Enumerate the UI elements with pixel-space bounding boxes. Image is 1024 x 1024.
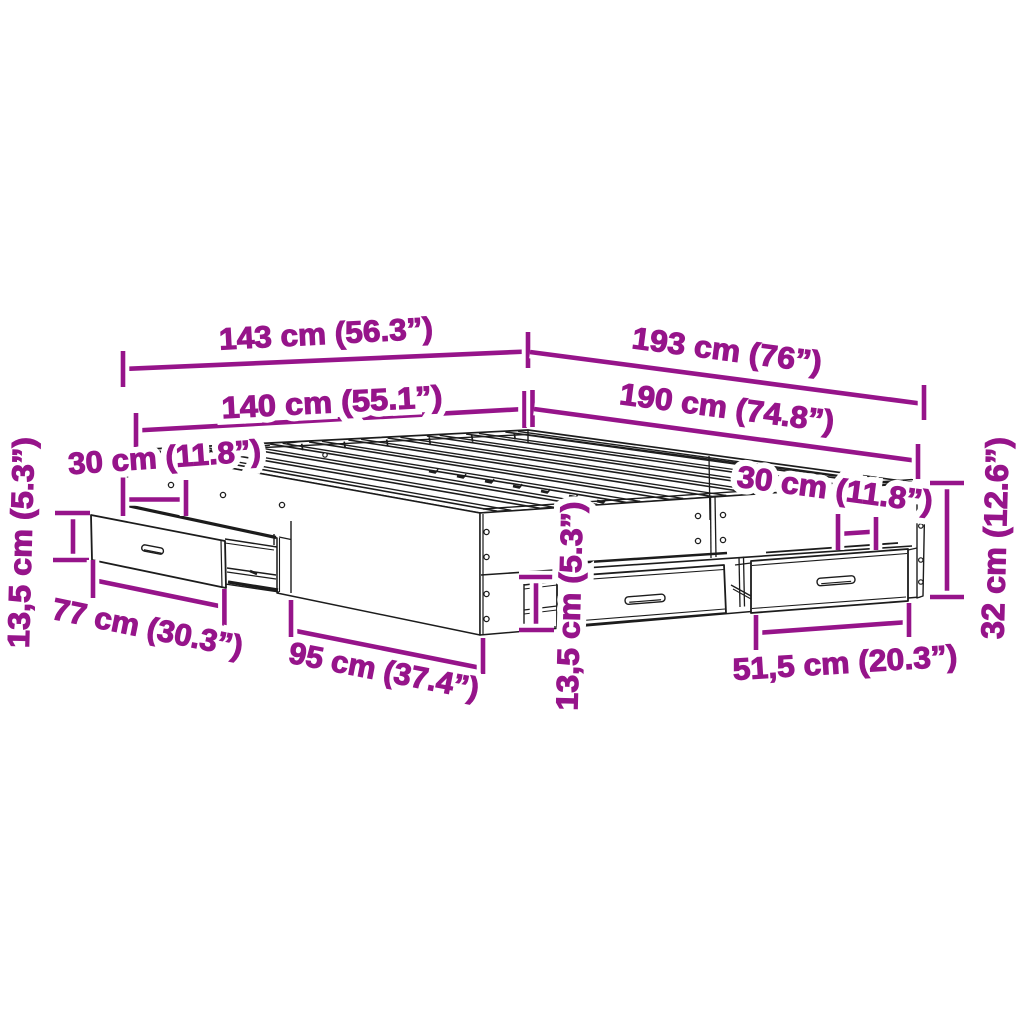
svg-text:13,5 cm (5.3”): 13,5 cm (5.3”) [2, 437, 42, 649]
svg-text:32 cm (12.6”): 32 cm (12.6”) [974, 437, 1015, 640]
svg-text:13,5 cm (5.3”): 13,5 cm (5.3”) [550, 501, 589, 711]
